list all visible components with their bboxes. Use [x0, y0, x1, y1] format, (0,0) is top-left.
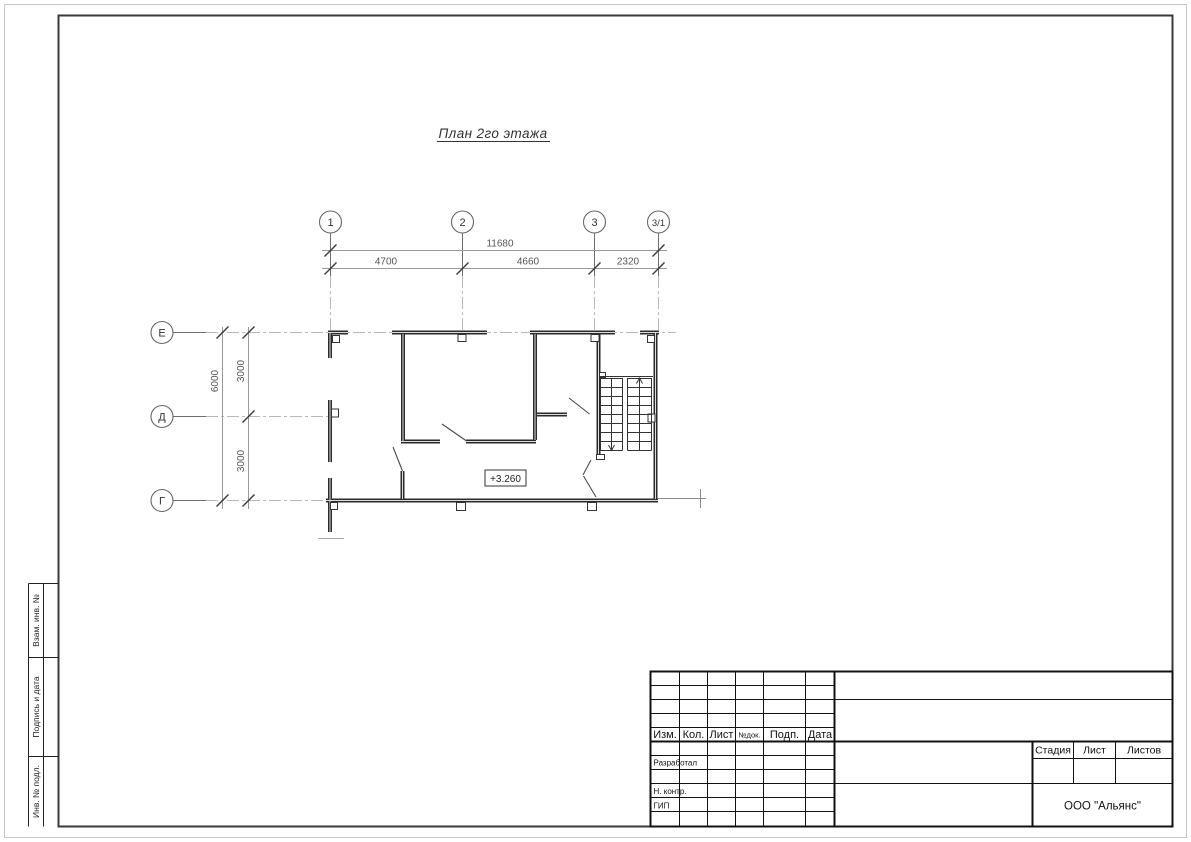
staircase	[600, 377, 653, 451]
dim-vspan-2: 3000	[236, 449, 247, 472]
axis-label-3: 3	[591, 217, 597, 229]
rev-header-izm: Изм.	[653, 729, 677, 741]
axis-centerlines	[206, 276, 676, 501]
stage-header: Стадия	[1035, 745, 1071, 757]
axis-bubbles-top	[320, 211, 670, 233]
rev-header-kol: Кол.	[683, 729, 705, 741]
side-strip-label-2: Подпись и дата	[31, 676, 41, 737]
drawing-frame	[59, 16, 1173, 827]
role-ncontrol: Н. контр.	[654, 787, 687, 796]
axis-label-2: 2	[459, 217, 465, 229]
dim-span-2: 4660	[517, 257, 540, 268]
dim-span-3: 2320	[617, 257, 640, 268]
axis-label-3-1: 3/1	[652, 218, 665, 229]
rev-header-list: Лист	[710, 729, 734, 741]
title-block: Изм. Кол. Лист №док. Подп. Дата Разработ…	[651, 672, 1173, 827]
rev-header-podp: Подп.	[770, 729, 799, 741]
floor-plan-canvas: План 2го этажа 1 2 3 3/1 Е Д Г	[0, 0, 1191, 842]
dim-total-width: 11680	[486, 239, 514, 250]
dim-vspan-1: 3000	[236, 359, 247, 382]
dim-total-height: 6000	[210, 369, 221, 392]
drawing-title-text: План 2го этажа	[439, 126, 548, 141]
sheet-header: Лист	[1083, 745, 1106, 757]
door-leaf-4a	[583, 460, 591, 475]
door-leaf-2	[442, 424, 467, 441]
axis-label-E: Е	[158, 328, 165, 340]
page-border	[5, 5, 1187, 838]
plan-edge-tails	[318, 489, 706, 539]
door-leaf-1	[393, 447, 403, 471]
axis-label-1: 1	[327, 217, 333, 229]
door-leaf-4b	[584, 476, 597, 497]
side-strip-label-3: Инв. № подл.	[31, 765, 41, 818]
sheets-header: Листов	[1127, 745, 1162, 757]
side-strip-label-1: Взам. инв. №	[31, 594, 41, 647]
rev-header-ndok: №док.	[739, 731, 761, 740]
elevation-value: +3.260	[490, 474, 521, 485]
dim-span-1: 4700	[375, 257, 398, 268]
elevation-marker: +3.260	[485, 470, 526, 486]
rev-header-data: Дата	[808, 729, 833, 741]
drawing-title: План 2го этажа	[437, 126, 550, 142]
role-gip: ГИП	[654, 802, 670, 811]
axis-label-G: Г	[159, 496, 165, 508]
drawing-sheet: План 2го этажа 1 2 3 3/1 Е Д Г	[0, 0, 1191, 842]
role-developer: Разработал	[654, 759, 698, 768]
axis-label-D: Д	[158, 412, 166, 424]
company-name: ООО "Альянс"	[1064, 801, 1141, 813]
door-leaf-3	[569, 398, 590, 414]
